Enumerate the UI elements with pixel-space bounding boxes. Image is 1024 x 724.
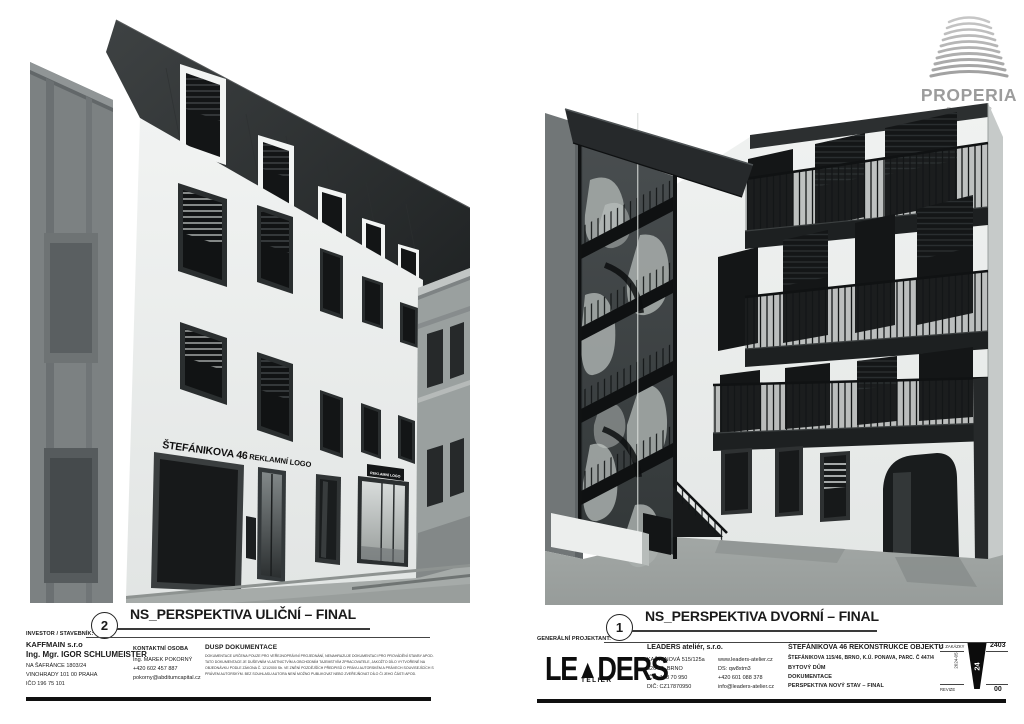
investor-name: Ing. Mgr. IGOR SCHLUMEISTER [26,650,147,659]
revision-date: 2024-05 [954,641,959,681]
balcony-band-1 [713,378,988,451]
mark-value: 24 [973,653,982,681]
dusp-line4: PRÁVEM AUTORSKÝM. BEZ SOUHLASU AUTORA NE… [205,672,416,678]
order-number: 2403 [990,642,1006,649]
courtyard-title-underline [632,630,877,632]
contact-email: pokorny@abditumcapital.cz [133,674,201,683]
leaders-phone: +420 601 088 378 [718,674,763,683]
leaders-company: LEADERS ateliér, s.r.o. [647,644,723,651]
project-line5: PERSPEKTIVA NOVÝ STAV – FINAL [788,683,884,689]
investor-ico: IČO 196 75 101 [26,680,65,689]
project-title: ŠTEFÁNIKOVA 46 REKONSTRUKCE OBJEKTU [788,644,944,651]
contact-name: Ing. MAREK POKORNÝ [133,656,192,665]
leaders-dic: DIČ: CZ17870950 [647,683,691,692]
investor-heading: INVESTOR / STAVEBNÍK: [26,631,94,637]
contact-heading: KONTAKTNÍ OSOBA [133,646,188,652]
courtyard-left-wall [545,113,583,559]
leaders-logo-sub: TELIÉR [581,677,613,684]
drawing-sheet: PROPERIA GROUP [0,0,1024,724]
leaders-ico: IČO: 178 70 950 [647,674,687,683]
order-label: Č. ZAKÁZKY [940,644,964,649]
project-line3: BYTOVÝ DŮM [788,665,826,671]
leaders-address1: KAŠTANOVÁ 515/125a [647,656,705,665]
titleblock-right-bar [537,699,1006,703]
titleblock-left-bar [26,697,431,701]
investor-address2: VINOHRADY 101 00 PRAHA [26,671,97,680]
revision-number: 00 [994,686,1002,693]
leaders-logo: LE▲DERS TELIÉR [545,649,642,695]
investor-heading-rule [86,637,430,638]
project-line4: DOKUMENTACE [788,674,832,680]
right-neighbor-building [416,268,470,578]
investor-company: KAFFMAIN s.r.o [26,640,83,649]
leaders-address2: 620 00, BRNO [647,665,683,674]
leaders-email: info@leaders-atelier.cz [718,683,774,692]
projektant-heading: GENERÁLNÍ PROJEKTANT: [537,636,611,642]
revision-label: REVIZE [940,687,955,692]
north-date-mark: 24 [963,643,991,689]
leaders-web: www.leaders-atelier.cz [718,656,773,665]
street-perspective-rendering: ŠTEFÁNIKOVA 46 REKLAMNÍ LOGO REKLAMNÍ LO… [30,18,470,603]
properia-waves-icon [918,12,1020,84]
courtyard-drawing-title: NS_PERSPEKTIVA DVORNÍ – FINAL [645,608,879,624]
street-drawing-title: NS_PERSPEKTIVA ULIČNÍ – FINAL [130,606,356,622]
contact-phone: +420 602 457 887 [133,665,178,674]
investor-address1: NA ŠAFRÁNCE 1803/24 [26,662,86,671]
street-title-underline [117,628,370,630]
dusp-heading: DUSP DOKUMENTACE [205,644,277,651]
left-neighbor-building [30,62,113,603]
courtyard-perspective-rendering [545,85,1005,605]
projektant-heading-rule [604,642,1006,643]
street-drawing-number: 2 [91,612,118,639]
leaders-ds: DS: qw8xtm3 [718,665,751,674]
project-subtitle: ŠTEFÁNIKOVA 115/46, BRNO, K.Ú. PONAVA, P… [788,655,934,661]
